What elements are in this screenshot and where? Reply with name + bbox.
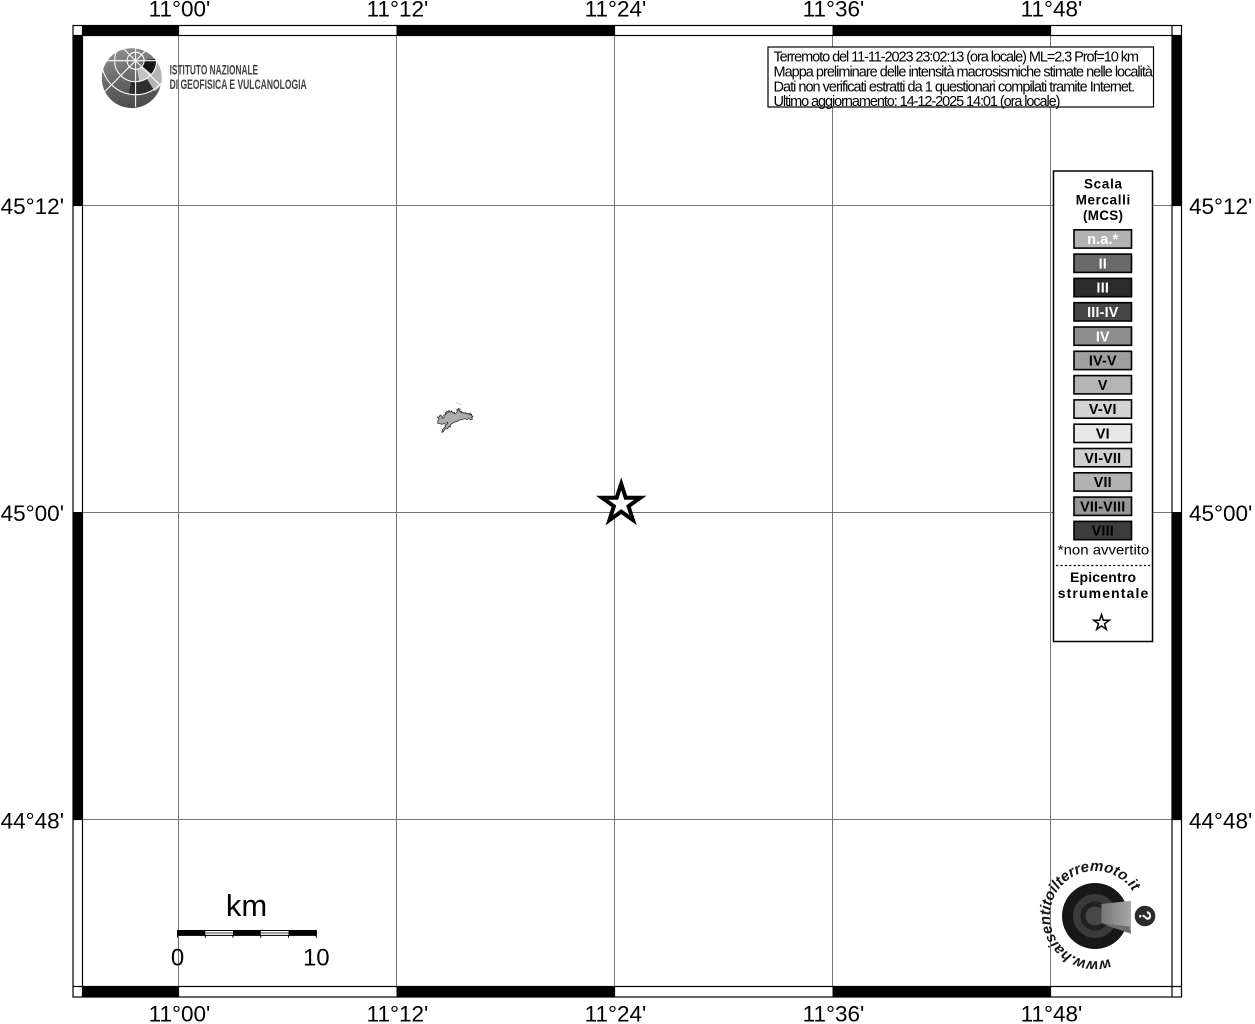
svg-text:11°00': 11°00' [149,0,211,22]
svg-text:V: V [1098,378,1108,394]
svg-text:VIII: VIII [1092,524,1114,540]
svg-text:Ultimo aggiornamento: 14-12-20: Ultimo aggiornamento: 14-12-2025 14:01 (… [774,94,1061,110]
svg-text:DI GEOFISICA E VULCANOLOGIA: DI GEOFISICA E VULCANOLOGIA [170,76,307,92]
svg-text:VI-VII: VI-VII [1084,451,1121,467]
svg-text:(MCS): (MCS) [1083,208,1123,223]
svg-text:Mercalli: Mercalli [1076,192,1131,207]
svg-text:44°48': 44°48' [1,809,64,834]
svg-text:III: III [1097,281,1110,297]
svg-text:n.a.*: n.a.* [1087,232,1118,248]
svg-text:V-VI: V-VI [1089,402,1117,418]
svg-text:Terremoto del 11-11-2023 23:02: Terremoto del 11-11-2023 23:02:13 (ora l… [774,50,1140,66]
svg-text:10: 10 [303,945,330,972]
svg-text:45°00': 45°00' [1189,501,1252,526]
svg-text:11°48': 11°48' [1021,1002,1083,1024]
svg-text:45°12': 45°12' [1189,194,1252,219]
svg-text:11°24': 11°24' [585,1002,647,1024]
svg-text:11°12': 11°12' [367,1002,429,1024]
svg-text:44°48': 44°48' [1189,809,1252,834]
svg-text:11°00': 11°00' [149,1002,211,1024]
svg-text:VI: VI [1096,427,1110,443]
svg-text:IV-V: IV-V [1089,354,1117,370]
svg-text:45°00': 45°00' [1,501,64,526]
svg-text:III-IV: III-IV [1087,305,1119,321]
svg-text:11°24': 11°24' [585,0,647,22]
svg-text:45°12': 45°12' [1,194,64,219]
svg-text:*non avvertito: *non avvertito [1058,542,1150,558]
svg-text:Epicentro: Epicentro [1070,569,1136,585]
svg-text:11°48': 11°48' [1021,0,1083,22]
svg-text:11°36': 11°36' [803,0,865,22]
svg-text:Mappa preliminare delle intens: Mappa preliminare delle intensità macros… [774,65,1154,81]
svg-text:IV: IV [1096,329,1110,345]
svg-text:km: km [226,888,267,923]
svg-text:0: 0 [171,945,184,972]
svg-text:Scala: Scala [1084,177,1123,192]
svg-text:11°12': 11°12' [367,0,429,22]
svg-text:VII: VII [1094,475,1112,491]
svg-text:II: II [1099,256,1107,272]
svg-text:11°36': 11°36' [803,1002,865,1024]
svg-text:VII-VIII: VII-VIII [1080,499,1125,515]
